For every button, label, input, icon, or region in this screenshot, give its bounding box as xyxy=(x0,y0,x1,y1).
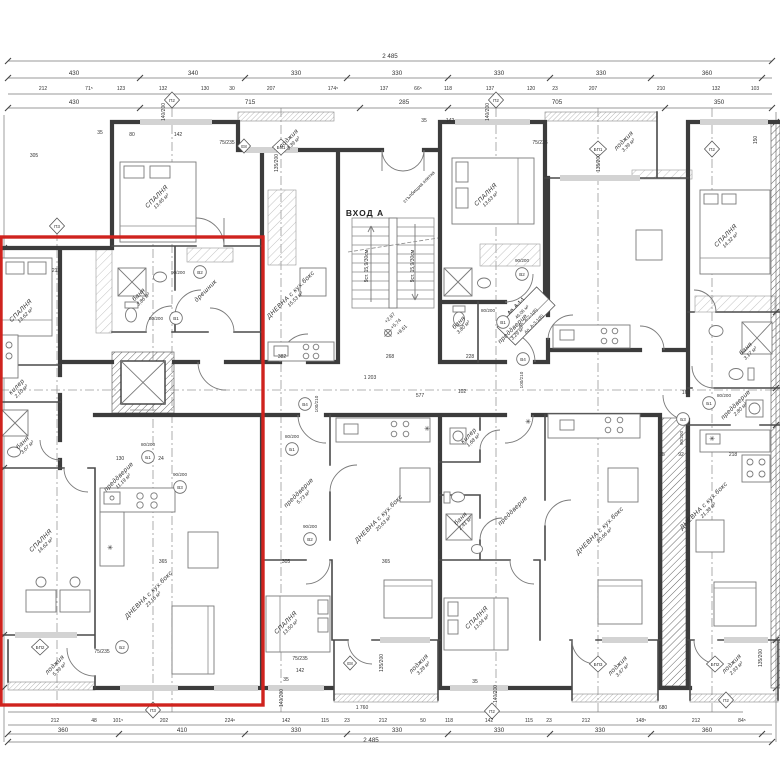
door-size-label: 75/235 xyxy=(94,649,110,655)
dimension-label: 130 xyxy=(116,456,125,462)
wall-cavity xyxy=(662,418,686,686)
loggia-rail xyxy=(545,112,657,121)
dimension-label: 228 xyxy=(466,354,475,360)
dimension-label: 23 xyxy=(344,718,350,724)
loggia-rail xyxy=(8,682,95,690)
dimension-label: 115 xyxy=(321,718,329,724)
dimension-label: 365 xyxy=(382,559,391,565)
dimension-label: 71⁵ xyxy=(85,86,93,92)
dimension-label: 430 xyxy=(69,70,80,77)
dimension-label: 207 xyxy=(589,86,598,92)
door-marker: Б1 xyxy=(706,401,712,406)
dimension-label: 132 xyxy=(159,86,168,92)
door-size-label: 80/200 xyxy=(481,308,495,313)
room-label: лоджия3,28 м² xyxy=(406,652,434,680)
axis-marker: БП2 xyxy=(711,662,720,667)
door-size-label: 90/200 xyxy=(515,258,529,263)
dimension-label: 430 xyxy=(69,99,80,106)
wardrobe xyxy=(96,248,112,333)
dimension-label: 305 xyxy=(282,559,291,565)
axis-marker: П2 xyxy=(489,709,495,714)
room-label: преддверие5,73 м² xyxy=(282,476,320,514)
sink xyxy=(154,272,167,282)
sink xyxy=(709,326,723,337)
dimension-label: 330 xyxy=(291,70,302,77)
dimension-label: 101⁵ xyxy=(113,718,123,724)
dimension-label: 268 xyxy=(386,354,395,360)
door-size-label: 135/200 xyxy=(379,654,385,672)
overall-dimension-top: 2 485 xyxy=(382,53,398,60)
dimension-label: 48 xyxy=(91,718,97,724)
room-label: баня3,80 м² xyxy=(450,314,472,336)
dimension-label: 1 203 xyxy=(364,375,377,381)
door-size-label: 140/200 xyxy=(279,689,285,707)
boiler-icon: ✳ xyxy=(525,418,531,426)
dimension-label: 148⁵ xyxy=(636,718,646,724)
sofa xyxy=(172,606,214,674)
loggia-rail xyxy=(334,694,438,702)
room-label: преддверие xyxy=(496,494,529,527)
door-size-label: 90/200 xyxy=(679,431,684,445)
entrance-label: ВХОД А xyxy=(346,208,384,218)
dimension-label: 25 xyxy=(659,452,665,458)
dimension-label: 330 xyxy=(596,70,607,77)
dimension-label: 35 xyxy=(472,679,478,685)
dimension-label: 1 760 xyxy=(356,705,369,711)
floor-plan-canvas: ВХОД А 2 48543034033033033033036021271⁵1… xyxy=(0,0,780,780)
dimension-label: 715 xyxy=(245,99,256,106)
wardrobe xyxy=(187,248,233,262)
dimension-label: 212 xyxy=(51,718,60,724)
door-size-label: 135/200 xyxy=(596,154,602,172)
dimension-label: 360 xyxy=(58,727,69,734)
door-size-label: 90/200 xyxy=(303,524,317,529)
door-size-label: 80/200 xyxy=(149,316,163,321)
sink xyxy=(472,545,483,554)
wardrobe xyxy=(695,296,775,312)
boiler-icon: ✳ xyxy=(709,435,715,443)
door-marker: Б1 xyxy=(145,455,151,460)
shower xyxy=(444,268,472,296)
stair-note: 9ст. 15,9/30см xyxy=(364,249,370,282)
dimension-label: 410 xyxy=(177,727,188,734)
floor-plan-sheet: ВХОД А 2 48543034033033033033036021271⁵1… xyxy=(0,0,780,780)
door-size-label: 100/210 xyxy=(314,395,319,412)
room-label: килер2,10 м² xyxy=(8,378,31,401)
dimension-label: 212 xyxy=(379,718,388,724)
dimension-label: 210 xyxy=(657,86,666,92)
dimension-label: 102 xyxy=(458,389,467,395)
stair-note: 9ст. 15,9/30см xyxy=(410,249,416,282)
dimension-label: 224⁶ xyxy=(225,718,235,724)
dimension-label: 35 xyxy=(283,677,289,683)
table xyxy=(188,532,218,568)
dimension-label: 142 xyxy=(485,718,494,724)
dimension-label: 212 xyxy=(582,718,591,724)
overall-dimension-bottom: 2 485 xyxy=(363,737,379,744)
door-marker: Б2 xyxy=(119,645,125,650)
dimension-label: 305 xyxy=(30,153,39,159)
dimension-label: 360 xyxy=(702,727,713,734)
door-marker: Б3 xyxy=(680,417,686,422)
dimension-label: 680 xyxy=(659,705,668,711)
dimension-label: 115 xyxy=(525,718,533,724)
desk-workstation xyxy=(26,577,56,612)
door-marker: В1 xyxy=(500,320,506,325)
axis-marker: П3 xyxy=(150,708,156,713)
dimension-label: 212 xyxy=(39,86,48,92)
door-marker: В1 xyxy=(173,316,179,321)
dimension-label: 142 xyxy=(282,718,291,724)
dimension-label: 163 xyxy=(682,390,691,396)
toilet xyxy=(444,492,465,503)
dimension-label: 30 xyxy=(229,86,235,92)
dimension-label: 80 xyxy=(129,132,135,138)
dimension-label: 330 xyxy=(291,727,302,734)
dimension-label: 123 xyxy=(117,86,126,92)
table xyxy=(636,230,662,260)
axis-marker: БП3 xyxy=(594,662,603,667)
dimension-label: 118 xyxy=(444,86,452,92)
dimension-label: 35 xyxy=(97,130,103,136)
loggia-rail xyxy=(572,694,658,702)
axis-marker: Е8 xyxy=(241,144,247,149)
elevator-shaft xyxy=(112,352,174,413)
door-size-label: 140/200 xyxy=(161,103,167,121)
room-label: лоджия3,39 м² xyxy=(611,129,639,157)
dimension-label: 330 xyxy=(392,727,403,734)
axis-marker: П3 xyxy=(54,224,60,229)
dimension-label: 35 xyxy=(421,118,427,124)
dimension-label: 330 xyxy=(392,70,403,77)
axis-marker: П2 xyxy=(709,147,715,152)
axis-marker: Е8 xyxy=(347,661,353,666)
kitchen-counter xyxy=(553,325,630,348)
room-label: ДНЕВНА с кух.бокс20,63 м² xyxy=(352,493,409,550)
dimension-label: 330 xyxy=(595,727,606,734)
dimension-label: 50 xyxy=(420,718,426,724)
dimension-label: 340 xyxy=(188,70,199,77)
door-size-label: 80/200 xyxy=(141,442,155,447)
sofa xyxy=(384,580,432,618)
room-label: ДНЕВНА с кух.бокс23,16 м² xyxy=(122,569,179,626)
stair-note: стълбищна клетка xyxy=(402,170,437,205)
table xyxy=(696,520,724,552)
door-size-label: 100/210 xyxy=(519,371,524,388)
dimension-label: 132 xyxy=(712,86,721,92)
door-marker: В4 xyxy=(520,357,526,362)
dimension-label: 23 xyxy=(546,718,552,724)
door-size-label: 135/200 xyxy=(274,154,280,172)
room-label: лоджия3,47 м² xyxy=(605,654,633,682)
door-size-label: 135/200 xyxy=(758,649,764,667)
door-size-label: 75/235 xyxy=(532,140,548,146)
boiler-icon: ✳ xyxy=(107,544,113,552)
door-size-label: 80/200 xyxy=(717,393,731,398)
dimension-label: 24 xyxy=(158,456,164,462)
dimension-label: 84⁵ xyxy=(738,718,746,724)
dimension-label: 212 xyxy=(692,718,701,724)
loggia-rail xyxy=(238,112,334,121)
room-label: лоджия5,39 м² xyxy=(42,653,70,681)
axis-marker: П2 xyxy=(723,698,729,703)
table xyxy=(400,468,430,502)
sofa xyxy=(714,582,756,626)
desk-workstation xyxy=(60,577,90,612)
room-label: лоджия2,93 м² xyxy=(719,652,747,680)
dimension-label: 705 xyxy=(552,99,563,106)
axis-marker: П2 xyxy=(493,98,499,103)
dimension-label: 142 xyxy=(296,668,305,674)
table xyxy=(608,468,638,502)
dimension-label: 285 xyxy=(399,99,410,106)
wardrobe xyxy=(480,244,540,266)
dimension-label: 23 xyxy=(552,86,558,92)
dimension-label: 142 xyxy=(174,132,183,138)
wardrobe xyxy=(268,190,296,265)
sofa xyxy=(598,580,642,624)
wall-cavity xyxy=(771,122,780,688)
axis-marker: БП1 xyxy=(277,145,286,150)
room-label: ДНЕВНА с кух.бокс20,66 м² xyxy=(573,505,630,562)
door-marker: В2 xyxy=(519,272,525,277)
door-size-label: 90/200 xyxy=(173,472,187,477)
dimension-label: 330 xyxy=(494,727,505,734)
dimension-label: 207 xyxy=(267,86,276,92)
door-size-label: 75/235 xyxy=(219,140,235,146)
door-marker: Б1 xyxy=(289,447,295,452)
dimension-label: 103 xyxy=(751,86,760,92)
dimension-label: 92 xyxy=(678,452,684,458)
dimension-label: 130 xyxy=(201,86,210,92)
dimension-label: 212 xyxy=(52,268,61,274)
dimension-label: 350 xyxy=(714,99,725,106)
axis-marker: БП1 xyxy=(594,147,603,152)
door-marker: В2 xyxy=(307,537,313,542)
door-marker: В4 xyxy=(302,402,308,407)
dimension-label: 142 xyxy=(446,118,455,124)
dimension-label: 174⁵ xyxy=(328,86,338,92)
axis-marker: БП2 xyxy=(36,645,45,650)
boiler-icon: ✳ xyxy=(424,425,430,433)
dimension-label: 137 xyxy=(380,86,389,92)
kitchen-counter xyxy=(100,488,175,566)
entrance-double-door xyxy=(382,150,424,171)
door-size-label: 140/200 xyxy=(485,103,491,121)
door-marker: В3 xyxy=(177,485,183,490)
room-label: СПАЛНЯ14,62 м² xyxy=(28,528,58,558)
washing-machine xyxy=(746,400,763,417)
sink xyxy=(478,278,491,288)
dimension-label: 360 xyxy=(702,70,713,77)
kitchen-counter xyxy=(548,414,640,438)
door-size-label: 80/200 xyxy=(285,434,299,439)
door-size-label: 90/200 xyxy=(171,270,185,275)
dimension-label: 330 xyxy=(494,70,505,77)
loggia-rail xyxy=(690,694,778,702)
dimension-label: 218 xyxy=(729,452,738,458)
bed xyxy=(2,258,52,336)
axis-marker: П2 xyxy=(169,98,175,103)
shower xyxy=(2,410,28,436)
toilet xyxy=(729,368,754,380)
dimension-label: 150 xyxy=(753,136,759,145)
door-size-label: 75/235 xyxy=(292,656,308,662)
door-marker: В2 xyxy=(197,270,203,275)
dimension-label: 66⁵ xyxy=(414,86,422,92)
dimension-label: 382 xyxy=(278,354,287,360)
dimension-label: 118 xyxy=(445,718,453,724)
dimension-label: 137 xyxy=(486,86,495,92)
door-size-label: 140/200 xyxy=(493,685,499,703)
dimension-label: 120 xyxy=(527,86,536,92)
room-label: ДНЕВНА с кух.бокс15,53 м² xyxy=(264,269,321,326)
dimension-label: 577 xyxy=(416,393,425,399)
kitchen-counter xyxy=(336,418,430,442)
dimension-label: 202 xyxy=(160,718,169,724)
dimension-label: 365 xyxy=(159,559,168,565)
